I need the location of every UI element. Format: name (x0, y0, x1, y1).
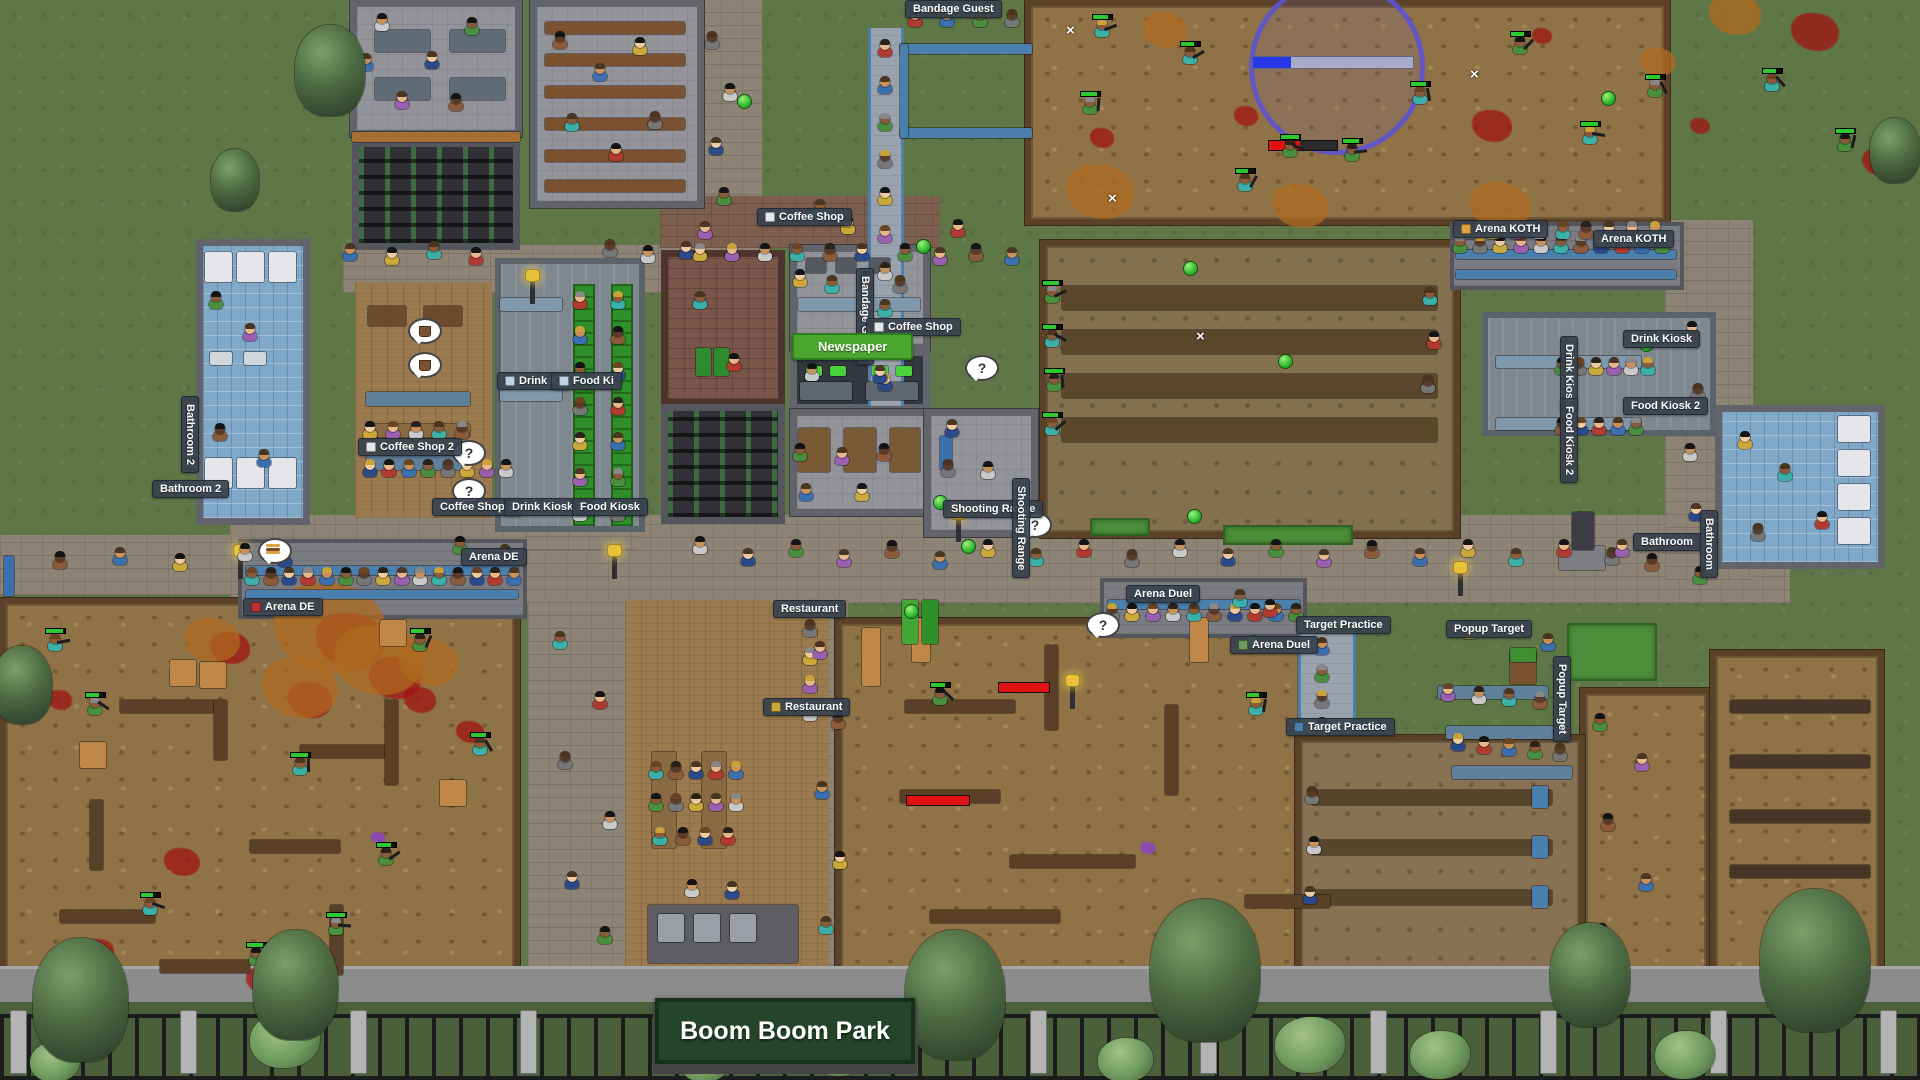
guest[interactable] (469, 247, 483, 266)
guest[interactable] (1477, 736, 1491, 755)
guest[interactable] (721, 827, 735, 846)
guest[interactable] (1533, 691, 1547, 710)
guest[interactable] (1592, 417, 1606, 436)
fighter[interactable] (1238, 173, 1252, 192)
guest[interactable] (320, 567, 334, 586)
guest[interactable] (1601, 813, 1615, 832)
furniture (210, 352, 232, 365)
guest[interactable] (705, 31, 719, 50)
coffee-bubble (408, 352, 442, 378)
fighter[interactable] (1648, 79, 1662, 98)
furniture (368, 306, 406, 326)
guest[interactable] (1423, 287, 1437, 306)
label-icon (505, 376, 515, 386)
guest[interactable] (855, 243, 869, 262)
guest[interactable] (395, 567, 409, 586)
guest[interactable] (790, 243, 804, 262)
guest[interactable] (793, 443, 807, 462)
guest[interactable] (833, 851, 847, 870)
guest[interactable] (1611, 417, 1625, 436)
guest[interactable] (1645, 553, 1659, 572)
guest[interactable] (717, 187, 731, 206)
guest[interactable] (1317, 549, 1331, 568)
guest[interactable] (1263, 599, 1277, 618)
guest[interactable] (1005, 9, 1019, 28)
fighter[interactable] (1283, 139, 1297, 158)
guest[interactable] (873, 365, 887, 384)
guest[interactable] (1589, 357, 1603, 376)
guest[interactable] (676, 827, 690, 846)
guest[interactable] (376, 567, 390, 586)
health-bar (998, 682, 1050, 693)
guest[interactable] (693, 536, 707, 555)
fence-post (1370, 1010, 1387, 1074)
guest[interactable] (1125, 603, 1139, 622)
bush (1275, 1017, 1345, 1073)
guest[interactable] (878, 150, 892, 169)
guest[interactable] (855, 483, 869, 502)
guest[interactable] (727, 353, 741, 372)
furniture (1010, 855, 1135, 868)
guest[interactable] (725, 243, 739, 262)
furniture (366, 392, 470, 406)
fighter[interactable] (1095, 19, 1109, 38)
building-label[interactable]: Arena DE (461, 548, 527, 566)
guest[interactable] (1683, 443, 1697, 462)
furniture (1532, 786, 1548, 808)
guest[interactable] (243, 323, 257, 342)
fighter[interactable] (1045, 329, 1059, 348)
guest[interactable] (933, 551, 947, 570)
building-label[interactable]: Coffee Shop 2 (358, 438, 462, 456)
guest[interactable] (573, 468, 587, 487)
building-label[interactable]: Target Practice (1286, 718, 1395, 736)
guest[interactable] (1778, 463, 1792, 482)
guest[interactable] (878, 76, 892, 95)
guest[interactable] (1629, 417, 1643, 436)
guest[interactable] (1187, 603, 1201, 622)
park-sign-title: Boom Boom Park (680, 1017, 890, 1046)
guest[interactable] (1528, 741, 1542, 760)
guest[interactable] (301, 567, 315, 586)
fighter[interactable] (88, 697, 102, 716)
fence-post (350, 1010, 367, 1074)
furniture (1730, 865, 1870, 878)
guest[interactable] (1248, 603, 1262, 622)
guest[interactable] (1579, 221, 1593, 240)
guest[interactable] (819, 916, 833, 935)
guest[interactable] (470, 567, 484, 586)
furniture (922, 600, 938, 644)
guest[interactable] (609, 143, 623, 162)
guest[interactable] (969, 243, 983, 262)
building-label[interactable]: Arena DE (243, 598, 323, 616)
furniture (545, 54, 685, 66)
guest[interactable] (480, 459, 494, 478)
building-label[interactable]: Popup Target (1553, 656, 1571, 742)
guest[interactable] (878, 262, 892, 281)
guest[interactable] (1502, 738, 1516, 757)
fighter[interactable] (933, 687, 947, 706)
furniture (80, 742, 106, 768)
furniture (866, 382, 918, 400)
furniture (696, 348, 711, 376)
pine-tree (905, 930, 1005, 1060)
guest[interactable] (933, 247, 947, 266)
guest[interactable] (402, 459, 416, 478)
guest[interactable] (878, 225, 892, 244)
fighter[interactable] (1183, 46, 1197, 65)
guest[interactable] (1221, 548, 1235, 567)
building-label[interactable]: Bathroom (1700, 510, 1718, 578)
guest[interactable] (1303, 886, 1317, 905)
guest[interactable] (558, 751, 572, 770)
guest[interactable] (573, 432, 587, 451)
guest[interactable] (1509, 548, 1523, 567)
guest[interactable] (898, 243, 912, 262)
guest[interactable] (893, 275, 907, 294)
guest[interactable] (1315, 664, 1329, 683)
guest[interactable] (449, 93, 463, 112)
bush (1655, 1031, 1715, 1079)
guest[interactable] (507, 567, 521, 586)
fighter[interactable] (379, 847, 393, 866)
guest[interactable] (815, 781, 829, 800)
guest[interactable] (598, 926, 612, 945)
fighter[interactable] (413, 633, 427, 652)
fighter[interactable] (1345, 143, 1359, 162)
building-label[interactable]: Drink Kiosk (1623, 330, 1700, 348)
fighter[interactable] (1045, 417, 1059, 436)
guest[interactable] (565, 113, 579, 132)
furniture (352, 132, 520, 142)
fighter[interactable] (143, 897, 157, 916)
guest[interactable] (758, 243, 772, 262)
building-label[interactable]: Arena Duel (1126, 585, 1200, 603)
guest[interactable] (789, 539, 803, 558)
guest[interactable] (693, 243, 707, 262)
map-region-hedge (1567, 623, 1657, 681)
label-icon (559, 376, 569, 386)
building-label[interactable]: Food Ki (551, 372, 622, 390)
guest[interactable] (1607, 357, 1621, 376)
guest[interactable] (648, 111, 662, 130)
guest[interactable] (1553, 743, 1567, 762)
guest[interactable] (441, 459, 455, 478)
furniture (890, 428, 920, 472)
guest[interactable] (1451, 733, 1465, 752)
label-icon (1238, 640, 1248, 650)
guest[interactable] (825, 275, 839, 294)
guest[interactable] (173, 553, 187, 572)
furniture (200, 662, 226, 688)
money-orb (1279, 355, 1292, 368)
guest[interactable] (339, 567, 353, 586)
guest[interactable] (1502, 688, 1516, 707)
guest[interactable] (649, 761, 663, 780)
guest[interactable] (709, 793, 723, 812)
guest[interactable] (603, 239, 617, 258)
guest[interactable] (1751, 523, 1765, 542)
guest[interactable] (363, 459, 377, 478)
guest[interactable] (282, 567, 296, 586)
fighter[interactable] (1047, 373, 1061, 392)
furniture (160, 960, 250, 973)
guest[interactable] (611, 291, 625, 310)
building-label[interactable]: Bathroom (1633, 533, 1701, 551)
guest[interactable] (1125, 549, 1139, 568)
guest[interactable] (1556, 221, 1570, 240)
guest[interactable] (573, 291, 587, 310)
guest[interactable] (573, 397, 587, 416)
guest[interactable] (593, 63, 607, 82)
furniture (440, 780, 466, 806)
guest[interactable] (213, 423, 227, 442)
guest[interactable] (573, 326, 587, 345)
guest[interactable] (885, 540, 899, 559)
fighter[interactable] (329, 917, 343, 936)
guest[interactable] (693, 291, 707, 310)
guest[interactable] (1635, 753, 1649, 772)
guest[interactable] (1557, 539, 1571, 558)
guest[interactable] (603, 811, 617, 830)
building-label[interactable]: Arena Duel (1230, 636, 1318, 654)
fighter[interactable] (1513, 36, 1527, 55)
guest[interactable] (803, 675, 817, 694)
guest[interactable] (685, 879, 699, 898)
park-sign: Boom Boom Park (655, 998, 915, 1064)
splatter (1532, 28, 1552, 44)
guest[interactable] (941, 459, 955, 478)
building-label[interactable]: Shooting Range (1012, 478, 1030, 578)
guest[interactable] (553, 631, 567, 650)
guest[interactable] (981, 539, 995, 558)
guest[interactable] (981, 461, 995, 480)
guest[interactable] (1207, 603, 1221, 622)
label-icon (1461, 224, 1471, 234)
building-label[interactable]: Bandage Guest (905, 0, 1002, 18)
guest[interactable] (593, 691, 607, 710)
fighter[interactable] (1765, 73, 1779, 92)
guest[interactable] (209, 291, 223, 310)
guest[interactable] (565, 871, 579, 890)
guest[interactable] (1315, 690, 1329, 709)
building-label[interactable]: Restaurant (763, 698, 850, 716)
guest[interactable] (413, 567, 427, 586)
label-icon (765, 212, 775, 222)
guest[interactable] (741, 548, 755, 567)
guest[interactable] (653, 827, 667, 846)
money-orb (1184, 262, 1197, 275)
guest[interactable] (1639, 873, 1653, 892)
furniture (658, 914, 684, 942)
guest[interactable] (709, 137, 723, 156)
guest[interactable] (1441, 683, 1455, 702)
guest[interactable] (641, 245, 655, 264)
guest[interactable] (432, 567, 446, 586)
splatter (404, 687, 436, 713)
question-bubble: ? (1086, 612, 1120, 638)
guest[interactable] (1305, 786, 1319, 805)
guest[interactable] (375, 13, 389, 32)
fighter[interactable] (473, 737, 487, 756)
guest[interactable] (729, 793, 743, 812)
furniture (1838, 518, 1870, 544)
guest[interactable] (611, 397, 625, 416)
building-label[interactable]: Food Kiosk (572, 498, 648, 516)
guest[interactable] (264, 567, 278, 586)
guest[interactable] (499, 459, 513, 478)
guest[interactable] (813, 641, 827, 660)
guest[interactable] (799, 483, 813, 502)
guest[interactable] (1461, 539, 1475, 558)
furniture (545, 86, 685, 98)
furniture (1572, 512, 1594, 550)
guest[interactable] (878, 113, 892, 132)
fighter[interactable] (1083, 96, 1097, 115)
building-label[interactable]: Target Practice (1296, 616, 1391, 634)
building-label[interactable]: Coffee Shop (757, 208, 852, 226)
guest[interactable] (1233, 589, 1247, 608)
guest[interactable] (633, 37, 647, 56)
guest[interactable] (421, 459, 435, 478)
guest[interactable] (1541, 633, 1555, 652)
guest[interactable] (669, 761, 683, 780)
furniture (1730, 755, 1870, 768)
pine-tree (253, 930, 338, 1041)
guest[interactable] (1166, 603, 1180, 622)
guest[interactable] (878, 299, 892, 318)
guest[interactable] (689, 761, 703, 780)
fighter[interactable] (48, 633, 62, 652)
guest[interactable] (488, 567, 502, 586)
guest[interactable] (611, 432, 625, 451)
guest[interactable] (877, 443, 891, 462)
guest[interactable] (1365, 540, 1379, 559)
guest[interactable] (649, 793, 663, 812)
guest[interactable] (1472, 686, 1486, 705)
guest[interactable] (951, 219, 965, 238)
lamp-head (608, 545, 621, 556)
guest[interactable] (553, 31, 567, 50)
furniture (1838, 450, 1870, 476)
building-label[interactable]: Popup Target (1446, 620, 1532, 638)
fighter[interactable] (1045, 285, 1059, 304)
lamp-post (1458, 570, 1463, 596)
guest[interactable] (878, 187, 892, 206)
guest[interactable] (257, 449, 271, 468)
guest[interactable] (669, 793, 683, 812)
guest[interactable] (238, 543, 252, 562)
pine-tree (0, 646, 52, 724)
building-label[interactable]: Newspaper (792, 333, 913, 360)
guest[interactable] (723, 83, 737, 102)
guest[interactable] (1738, 431, 1752, 450)
guest[interactable] (385, 247, 399, 266)
guest[interactable] (878, 39, 892, 58)
guest[interactable] (1029, 548, 1043, 567)
guest[interactable] (837, 549, 851, 568)
guest[interactable] (729, 761, 743, 780)
fighter[interactable] (1413, 86, 1427, 105)
furniture (1452, 766, 1572, 779)
building-label[interactable]: Arena KOTH (1593, 230, 1674, 248)
guest[interactable] (611, 468, 625, 487)
pine-tree (1870, 118, 1920, 183)
fighter[interactable] (1838, 133, 1852, 152)
guest[interactable] (425, 51, 439, 70)
guest[interactable] (611, 326, 625, 345)
guest[interactable] (1421, 375, 1435, 394)
guest[interactable] (451, 567, 465, 586)
guest[interactable] (1269, 539, 1283, 558)
building-label[interactable]: Arena KOTH (1453, 220, 1548, 238)
guest[interactable] (1593, 713, 1607, 732)
fighter[interactable] (293, 757, 307, 776)
guest[interactable] (382, 459, 396, 478)
guest[interactable] (689, 793, 703, 812)
fighter[interactable] (1249, 697, 1263, 716)
lamp-head (526, 270, 539, 281)
fighter[interactable] (1583, 126, 1597, 145)
guest[interactable] (1077, 539, 1091, 558)
guest[interactable] (823, 243, 837, 262)
guest[interactable] (698, 221, 712, 240)
guest[interactable] (1615, 539, 1629, 558)
guest[interactable] (945, 419, 959, 438)
furniture (830, 366, 846, 376)
guest[interactable] (1815, 511, 1829, 530)
guest[interactable] (245, 567, 259, 586)
guest[interactable] (1307, 836, 1321, 855)
fence-post (1030, 1010, 1047, 1074)
building-label[interactable]: Restaurant (773, 600, 846, 618)
guest[interactable] (427, 241, 441, 260)
guest[interactable] (793, 269, 807, 288)
guest[interactable] (1173, 539, 1187, 558)
guest[interactable] (805, 363, 819, 382)
guest[interactable] (679, 241, 693, 260)
guest[interactable] (1146, 603, 1160, 622)
guest[interactable] (53, 551, 67, 570)
guest[interactable] (1641, 357, 1655, 376)
guest[interactable] (1413, 548, 1427, 567)
money-orb (738, 95, 751, 108)
guest[interactable] (1427, 331, 1441, 350)
building-label[interactable]: Food Kiosk 2 (1560, 398, 1578, 483)
guest[interactable] (725, 881, 739, 900)
guest[interactable] (709, 761, 723, 780)
building-label[interactable]: Bathroom 2 (181, 396, 199, 473)
building-label[interactable]: Bathroom 2 (152, 480, 229, 498)
guest[interactable] (803, 619, 817, 638)
building-label[interactable]: Food Kiosk 2 (1623, 397, 1708, 415)
furniture (1062, 374, 1437, 398)
guest[interactable] (357, 567, 371, 586)
guest[interactable] (395, 91, 409, 110)
guest[interactable] (113, 547, 127, 566)
guest[interactable] (1005, 247, 1019, 266)
guest[interactable] (1624, 357, 1638, 376)
guest[interactable] (465, 17, 479, 36)
impact-mark: × (1066, 22, 1075, 39)
splatter (1709, 0, 1761, 35)
guest[interactable] (698, 827, 712, 846)
lamp-head (1454, 562, 1467, 573)
guest[interactable] (343, 243, 357, 262)
lamp-post (612, 553, 617, 579)
guest[interactable] (835, 447, 849, 466)
